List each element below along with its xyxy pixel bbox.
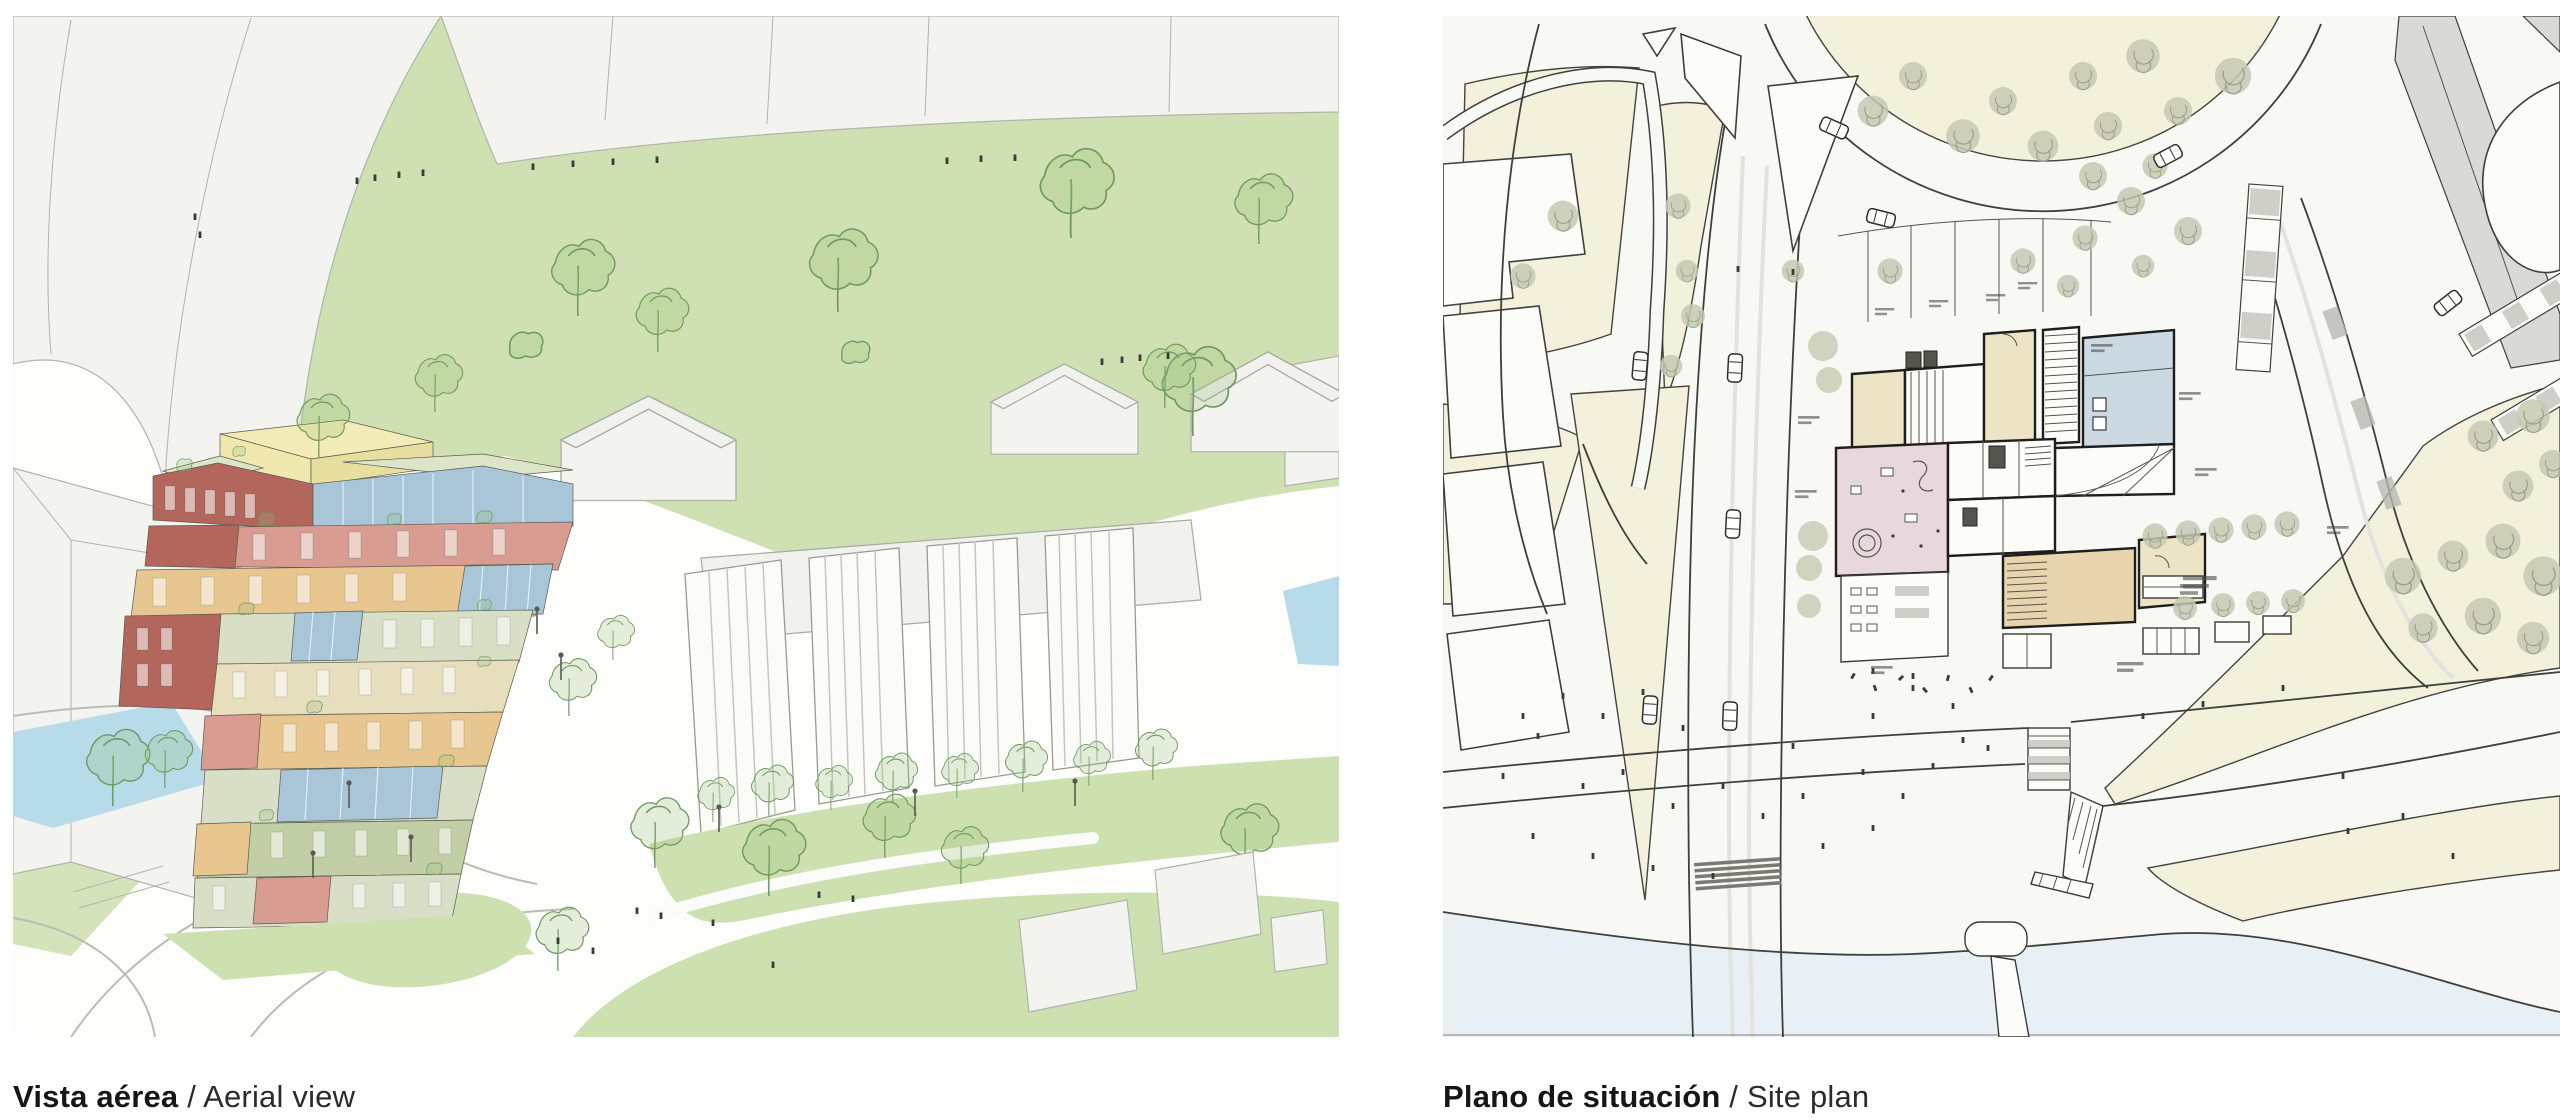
boat-platform bbox=[1965, 922, 2027, 956]
aerial-view-illustration bbox=[13, 16, 1339, 1037]
caption-aerial-separator: / bbox=[178, 1079, 203, 1114]
caption-aerial-en: Aerial view bbox=[203, 1079, 355, 1114]
caption-site-plan-separator: / bbox=[1720, 1079, 1746, 1114]
caption-site-plan-en: Site plan bbox=[1747, 1079, 1869, 1114]
presentation-board: Vista aérea / Aerial view bbox=[0, 0, 2560, 1112]
figure-site-plan: Plano de situación / Site plan bbox=[1443, 16, 2560, 1112]
caption-site-plan: Plano de situación / Site plan bbox=[1443, 1081, 2560, 1112]
caption-site-plan-es: Plano de situación bbox=[1443, 1079, 1720, 1114]
site-plan-illustration bbox=[1443, 16, 2560, 1037]
figure-aerial-view: Vista aérea / Aerial view bbox=[13, 16, 1339, 1112]
stairs bbox=[2028, 728, 2070, 790]
caption-aerial-es: Vista aérea bbox=[13, 1079, 178, 1114]
caption-aerial-view: Vista aérea / Aerial view bbox=[13, 1081, 1339, 1112]
